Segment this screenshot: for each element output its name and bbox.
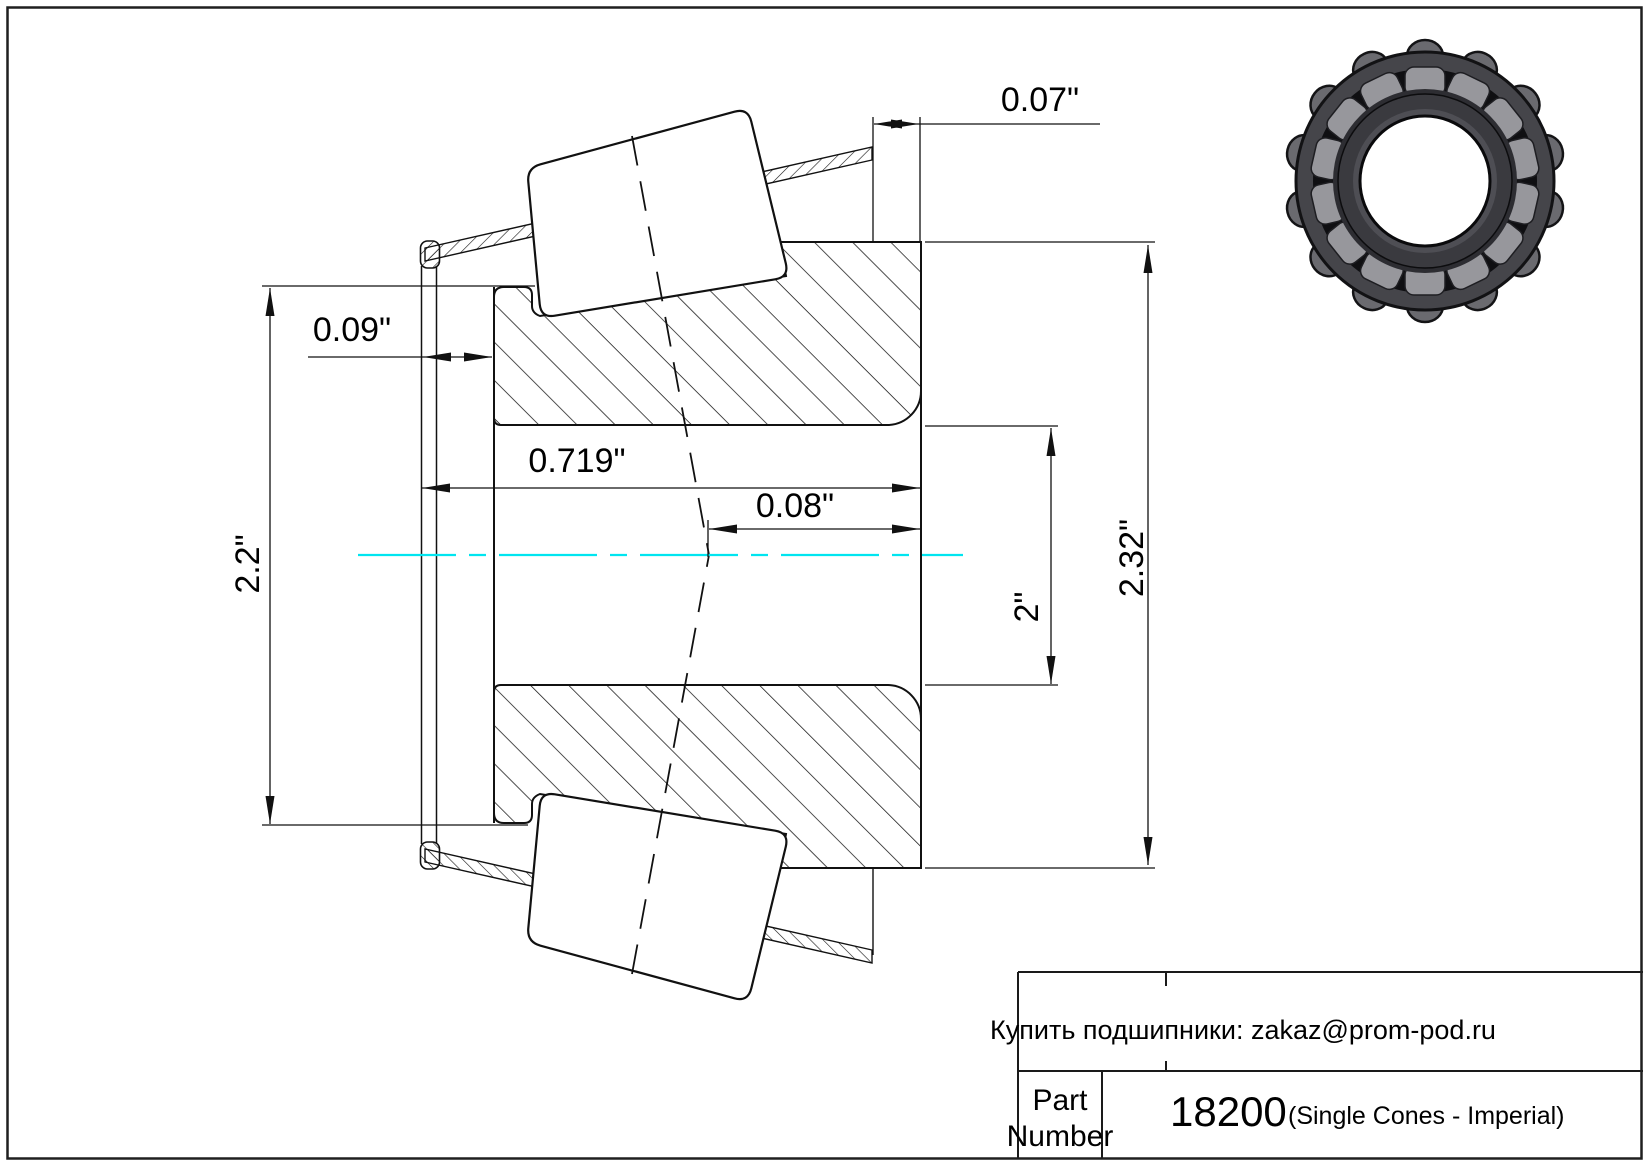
drawing-sheet: 0.07" 0.09" 0.719" 0.08" 2.2" 2" 2.32"	[0, 0, 1649, 1167]
dim-front-face-offset: 0.09"	[313, 311, 391, 349]
dim-cage-front-diameter: 2.2"	[229, 534, 267, 593]
bore-hole	[1360, 116, 1490, 246]
cage-lip-top	[421, 241, 440, 268]
dim-bore-diameter: 2"	[1008, 592, 1046, 623]
dim-effective-center-offset: 0.08"	[756, 487, 834, 525]
bearing-photo	[1284, 40, 1567, 322]
part-number-value: 18200	[1170, 1088, 1287, 1135]
cone-section-bottom-half	[421, 555, 922, 999]
title-block-text: Купить подшипники: zakaz@prom-pod.ru Par…	[990, 1015, 1564, 1153]
part-label-line1: Part	[1032, 1084, 1088, 1117]
dim-cone-width: 0.719"	[528, 442, 625, 480]
dim-cage-stand-out: 0.07"	[1001, 81, 1079, 119]
supplier-note: Купить подшипники: zakaz@prom-pod.ru	[990, 1015, 1496, 1045]
cage-lip-bottom	[421, 842, 440, 869]
bearing-drawing-svg: 0.07" 0.09" 0.719" 0.08" 2.2" 2" 2.32"	[0, 0, 1649, 1167]
part-label-line2: Number	[1007, 1120, 1114, 1153]
dim-back-face-diameter: 2.32"	[1113, 519, 1151, 597]
part-number-suffix: (Single Cones - Imperial)	[1288, 1102, 1565, 1130]
